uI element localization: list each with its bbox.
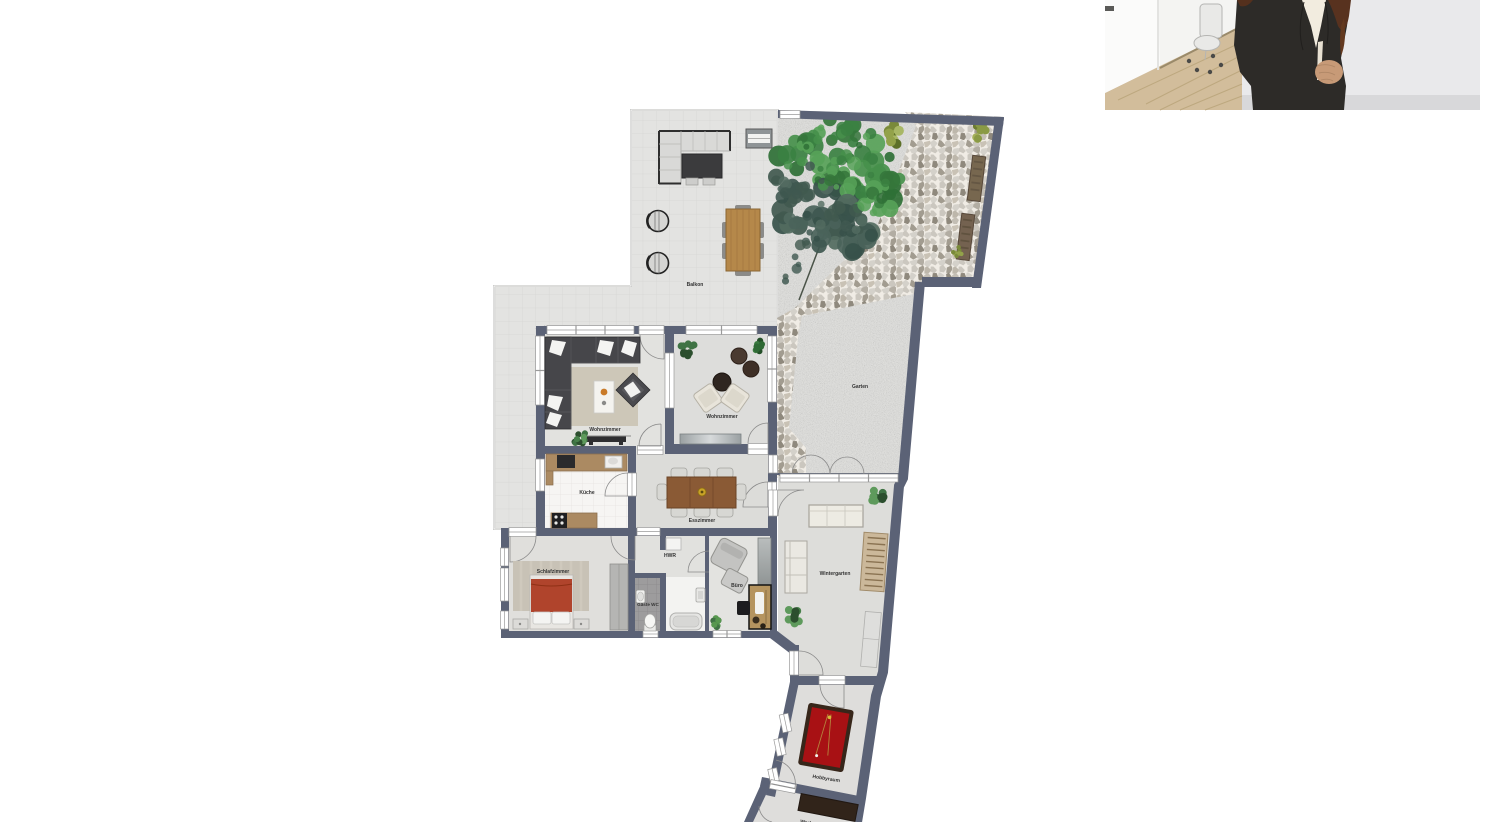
svg-text:Wohnzimmer: Wohnzimmer xyxy=(589,427,620,433)
svg-text:Gäste WC: Gäste WC xyxy=(637,602,659,607)
svg-text:Esszimmer: Esszimmer xyxy=(689,518,715,524)
svg-text:Küche: Küche xyxy=(579,490,595,496)
svg-text:Garten: Garten xyxy=(852,384,868,390)
svg-text:Büro: Büro xyxy=(731,583,743,589)
svg-text:HWR: HWR xyxy=(664,553,676,559)
svg-text:Wohnzimmer: Wohnzimmer xyxy=(706,414,737,420)
svg-text:Wintergarten: Wintergarten xyxy=(820,571,851,577)
svg-text:Balkon: Balkon xyxy=(687,282,704,288)
svg-text:Schlafzimmer: Schlafzimmer xyxy=(537,569,570,575)
